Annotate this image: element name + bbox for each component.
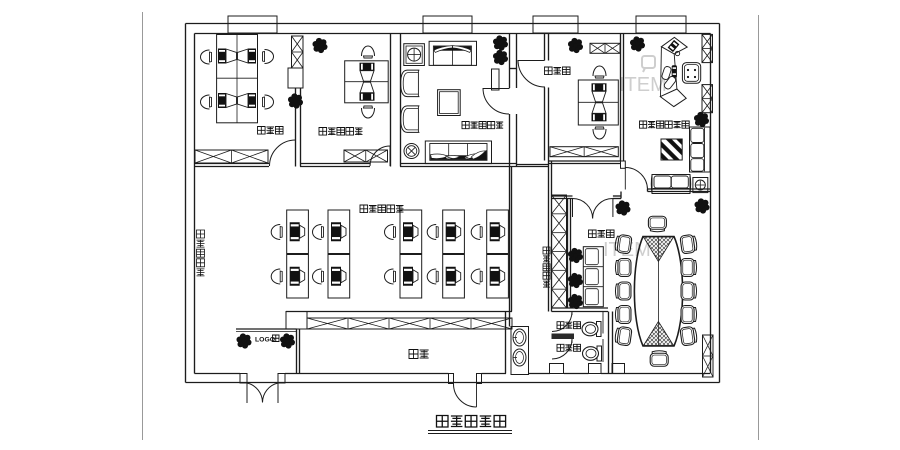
svg-text:ITEM: ITEM [619,74,667,96]
svg-text:LOGO: LOGO [255,337,275,344]
